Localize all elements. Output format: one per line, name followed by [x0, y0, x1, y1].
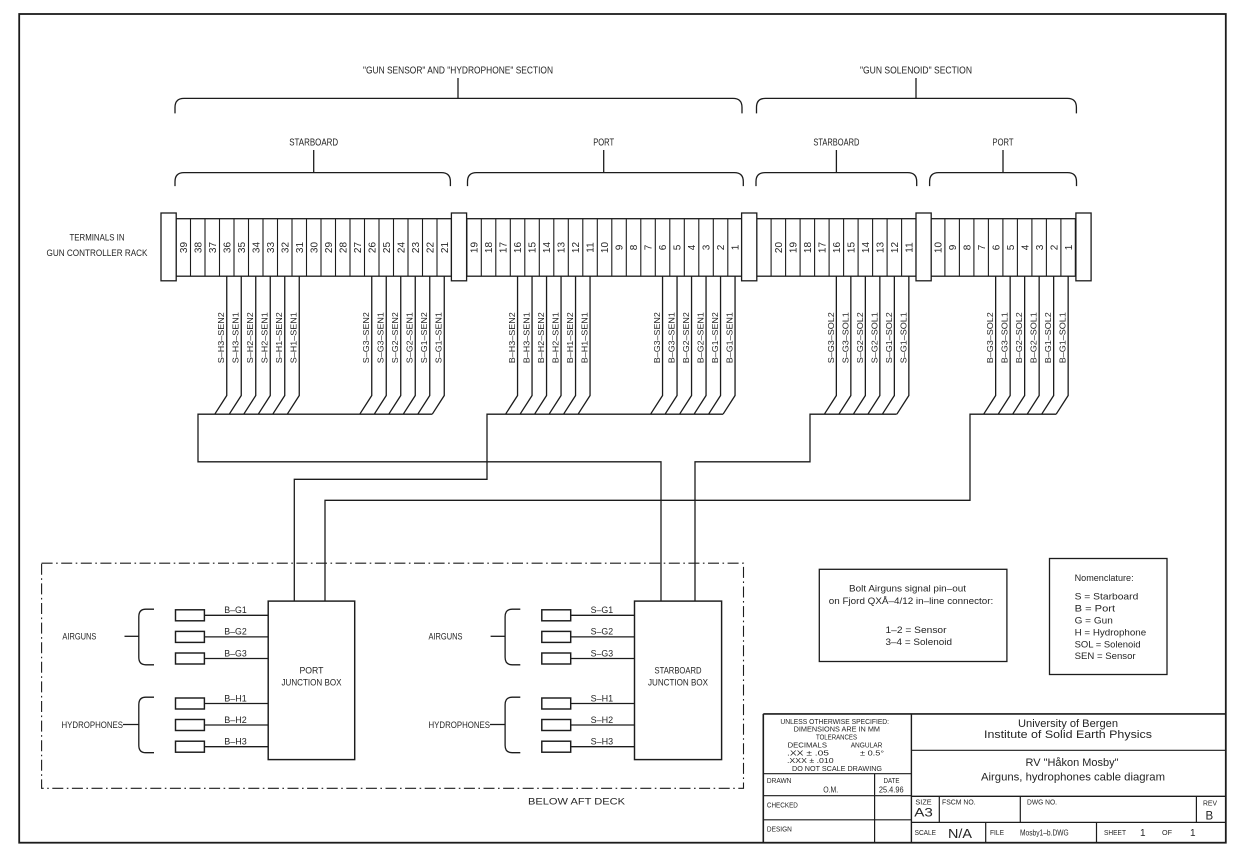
svg-text:3: 3	[1035, 244, 1046, 250]
svg-text:4: 4	[1020, 244, 1031, 250]
svg-text:25: 25	[382, 242, 393, 254]
svg-text:1: 1	[1140, 828, 1146, 839]
svg-text:FSCM NO.: FSCM NO.	[942, 798, 976, 807]
svg-text:S–G2–SEN2: S–G2–SEN2	[390, 312, 400, 363]
svg-text:1–2 = Sensor: 1–2 = Sensor	[886, 625, 947, 635]
svg-text:PORT: PORT	[993, 138, 1014, 149]
svg-text:3–4 = Solenoid: 3–4 = Solenoid	[886, 637, 953, 647]
svg-text:2: 2	[716, 244, 727, 250]
svg-text:S = Starboard: S = Starboard	[1075, 592, 1139, 603]
svg-text:S–G2: S–G2	[591, 627, 614, 637]
svg-text:B = Port: B = Port	[1075, 604, 1116, 615]
svg-text:5: 5	[1006, 244, 1017, 250]
svg-text:B–G3–SOL1: B–G3–SOL1	[1000, 312, 1010, 363]
svg-text:TERMINALS IN: TERMINALS IN	[70, 232, 125, 243]
svg-text:B–H2: B–H2	[224, 715, 247, 725]
svg-text:12: 12	[571, 242, 582, 254]
svg-text:"GUN SOLENOID" SECTION: "GUN SOLENOID" SECTION	[860, 66, 972, 77]
svg-text:5: 5	[673, 244, 684, 250]
svg-text:STARBOARD: STARBOARD	[655, 665, 702, 675]
svg-text:B–G1–SOL1: B–G1–SOL1	[1058, 312, 1068, 363]
svg-text:AIRGUNS: AIRGUNS	[62, 632, 96, 643]
svg-text:S–H3: S–H3	[591, 737, 614, 747]
svg-text:17: 17	[817, 242, 828, 254]
svg-text:13: 13	[557, 242, 568, 254]
svg-text:19: 19	[788, 242, 799, 254]
svg-text:S–H1: S–H1	[591, 693, 614, 703]
svg-text:"GUN SENSOR" AND "HYDROPHONE": "GUN SENSOR" AND "HYDROPHONE" SECTION	[363, 66, 553, 77]
svg-text:B–H1: B–H1	[224, 693, 247, 703]
svg-text:11: 11	[904, 242, 915, 253]
svg-text:7: 7	[977, 244, 988, 250]
svg-text:S–H2–SEN1: S–H2–SEN1	[260, 312, 270, 363]
svg-text:S–G2–SOL2: S–G2–SOL2	[855, 312, 865, 363]
svg-text:16: 16	[513, 242, 524, 254]
svg-text:B–G1–SOL2: B–G1–SOL2	[1043, 312, 1053, 363]
svg-text:JUNCTION BOX: JUNCTION BOX	[648, 677, 708, 687]
svg-text:8: 8	[629, 244, 640, 250]
svg-text:GUN CONTROLLER RACK: GUN CONTROLLER RACK	[47, 248, 149, 259]
svg-text:6: 6	[991, 244, 1002, 250]
svg-text:N/A: N/A	[948, 827, 973, 841]
svg-text:37: 37	[208, 242, 219, 254]
svg-text:S–G3–SEN1: S–G3–SEN1	[376, 312, 386, 363]
svg-text:9: 9	[948, 244, 959, 250]
svg-text:39: 39	[179, 242, 190, 254]
svg-text:S–G1–SOL1: S–G1–SOL1	[898, 312, 908, 363]
svg-text:BELOW AFT DECK: BELOW AFT DECK	[528, 797, 626, 808]
svg-text:29: 29	[324, 242, 335, 254]
svg-text:9: 9	[615, 244, 626, 250]
svg-text:SIZE: SIZE	[915, 798, 931, 807]
svg-text:S–G3–SEN2: S–G3–SEN2	[361, 312, 371, 363]
svg-text:33: 33	[266, 242, 277, 254]
svg-text:S–G2–SEN1: S–G2–SEN1	[405, 312, 415, 363]
svg-text:S–H1–SEN1: S–H1–SEN1	[289, 312, 299, 363]
svg-text:SEN = Sensor: SEN = Sensor	[1075, 651, 1136, 662]
svg-text:Bolt Airguns signal pin–out: Bolt Airguns signal pin–out	[849, 584, 967, 594]
svg-text:24: 24	[396, 242, 407, 254]
svg-text:B–G3–SOL2: B–G3–SOL2	[985, 312, 995, 363]
svg-text:B–H3–SEN2: B–H3–SEN2	[507, 312, 517, 363]
svg-text:S–H2–SEN2: S–H2–SEN2	[245, 312, 255, 363]
svg-text:3: 3	[702, 244, 713, 250]
svg-text:B–G2–SOL1: B–G2–SOL1	[1029, 312, 1039, 363]
svg-text:PORT: PORT	[593, 138, 614, 149]
svg-text:PORT: PORT	[300, 665, 324, 675]
svg-text:S–G1–SEN1: S–G1–SEN1	[434, 312, 444, 363]
svg-text:on Fjord QXÅ–4/12 in–line conn: on Fjord QXÅ–4/12 in–line connector:	[829, 596, 994, 606]
svg-text:S–G1: S–G1	[591, 605, 614, 615]
svg-text:B–G2–SEN1: B–G2–SEN1	[695, 312, 705, 363]
svg-text:13: 13	[875, 242, 886, 254]
svg-text:7: 7	[644, 244, 655, 250]
svg-text:B–G2–SOL2: B–G2–SOL2	[1014, 312, 1024, 363]
svg-text:REV: REV	[1203, 798, 1218, 807]
svg-text:26: 26	[367, 242, 378, 254]
svg-text:14: 14	[542, 242, 553, 254]
svg-text:DO NOT SCALE DRAWING: DO NOT SCALE DRAWING	[792, 764, 882, 773]
svg-text:DRAWN: DRAWN	[767, 776, 792, 785]
svg-text:B–G1–SEN2: B–G1–SEN2	[710, 312, 720, 363]
svg-text:FILE: FILE	[990, 828, 1004, 837]
svg-text:10: 10	[933, 242, 944, 254]
svg-text:G = Gun: G = Gun	[1075, 616, 1113, 627]
svg-text:B–G1–SEN1: B–G1–SEN1	[724, 312, 734, 363]
svg-text:1: 1	[1190, 828, 1196, 839]
svg-text:Mosby1–b.DWG: Mosby1–b.DWG	[1020, 827, 1069, 837]
svg-text:B–H2–SEN2: B–H2–SEN2	[536, 312, 546, 363]
svg-text:S–G1–SEN2: S–G1–SEN2	[419, 312, 429, 363]
svg-text:31: 31	[295, 242, 306, 254]
svg-text:32: 32	[280, 242, 291, 254]
svg-text:HYDROPHONES: HYDROPHONES	[62, 720, 124, 731]
svg-text:25.4.96: 25.4.96	[879, 784, 904, 794]
svg-text:S–H1–SEN2: S–H1–SEN2	[274, 312, 284, 363]
svg-text:20: 20	[774, 242, 785, 254]
svg-text:SHEET: SHEET	[1104, 828, 1126, 837]
svg-text:B: B	[1205, 811, 1213, 823]
svg-text:27: 27	[353, 242, 364, 254]
svg-text:HYDROPHONES: HYDROPHONES	[429, 720, 491, 731]
svg-text:18: 18	[484, 242, 495, 254]
svg-text:19: 19	[470, 242, 481, 254]
svg-text:14: 14	[861, 242, 872, 254]
svg-text:8: 8	[962, 244, 973, 250]
svg-text:38: 38	[193, 242, 204, 254]
svg-text:JUNCTION BOX: JUNCTION BOX	[282, 677, 342, 687]
svg-text:S–G3–SOL1: S–G3–SOL1	[840, 312, 850, 363]
svg-text:1: 1	[731, 244, 742, 250]
svg-text:S–G3–SOL2: S–G3–SOL2	[826, 312, 836, 363]
svg-text:B–G3: B–G3	[224, 648, 247, 658]
svg-text:B–H1–SEN2: B–H1–SEN2	[565, 312, 575, 363]
svg-text:4: 4	[687, 244, 698, 250]
svg-text:B–H3: B–H3	[224, 737, 247, 747]
svg-text:O.M.: O.M.	[823, 784, 838, 794]
svg-text:30: 30	[309, 242, 320, 254]
svg-text:35: 35	[237, 242, 248, 254]
svg-text:12: 12	[890, 242, 901, 254]
svg-text:10: 10	[600, 242, 611, 254]
svg-text:CHECKED: CHECKED	[767, 801, 798, 810]
svg-text:16: 16	[832, 242, 843, 254]
svg-text:2: 2	[1049, 244, 1060, 250]
svg-text:15: 15	[528, 242, 539, 254]
svg-text:S–G1–SOL2: S–G1–SOL2	[884, 312, 894, 363]
svg-text:34: 34	[251, 242, 262, 254]
svg-text:S–H2: S–H2	[591, 715, 614, 725]
svg-text:B–G3–SEN1: B–G3–SEN1	[666, 312, 676, 363]
svg-text:DWG NO.: DWG NO.	[1027, 798, 1057, 807]
svg-text:6: 6	[658, 244, 669, 250]
svg-text:18: 18	[803, 242, 814, 254]
svg-text:OF: OF	[1162, 828, 1172, 837]
svg-text:B–G1: B–G1	[224, 605, 247, 615]
svg-text:21: 21	[440, 242, 451, 254]
svg-text:Nomenclature:: Nomenclature:	[1075, 573, 1134, 584]
svg-text:23: 23	[411, 242, 422, 254]
svg-text:17: 17	[499, 242, 510, 254]
svg-text:STARBOARD: STARBOARD	[813, 138, 859, 149]
svg-text:S–G3: S–G3	[591, 648, 614, 658]
svg-text:B–H3–SEN1: B–H3–SEN1	[521, 312, 531, 363]
svg-text:15: 15	[846, 242, 857, 254]
svg-text:H = Hydrophone: H = Hydrophone	[1075, 628, 1147, 639]
svg-text:STARBOARD: STARBOARD	[289, 138, 338, 149]
svg-text:SCALE: SCALE	[915, 828, 936, 837]
svg-text:SOL = Solenoid: SOL = Solenoid	[1075, 640, 1141, 651]
svg-text:B–H1–SEN1: B–H1–SEN1	[579, 312, 589, 363]
svg-text:11: 11	[586, 242, 597, 253]
svg-text:B–G2: B–G2	[224, 627, 247, 637]
svg-text:A3: A3	[914, 808, 933, 820]
svg-text:Airguns, hydrophones cable dia: Airguns, hydrophones cable diagram	[981, 772, 1165, 784]
svg-text:S–H3–SEN2: S–H3–SEN2	[216, 312, 226, 363]
svg-text:22: 22	[425, 242, 436, 254]
svg-text:S–G2–SOL1: S–G2–SOL1	[869, 312, 879, 363]
svg-text:B–G3–SEN2: B–G3–SEN2	[652, 312, 662, 363]
svg-text:DESIGN: DESIGN	[767, 825, 792, 834]
svg-text:1: 1	[1064, 244, 1075, 250]
svg-text:± 0.5°: ± 0.5°	[860, 748, 884, 757]
svg-text:B–G2–SEN2: B–G2–SEN2	[681, 312, 691, 363]
svg-text:28: 28	[338, 242, 349, 254]
svg-text:S–H3–SEN1: S–H3–SEN1	[231, 312, 241, 363]
svg-text:B–H2–SEN1: B–H2–SEN1	[550, 312, 560, 363]
svg-text:Institute of Solid Earth Physi: Institute of Solid Earth Physics	[984, 729, 1153, 741]
svg-text:RV "Håkon Mosby": RV "Håkon Mosby"	[1026, 757, 1119, 769]
svg-text:AIRGUNS: AIRGUNS	[429, 632, 463, 643]
svg-text:36: 36	[222, 242, 233, 254]
